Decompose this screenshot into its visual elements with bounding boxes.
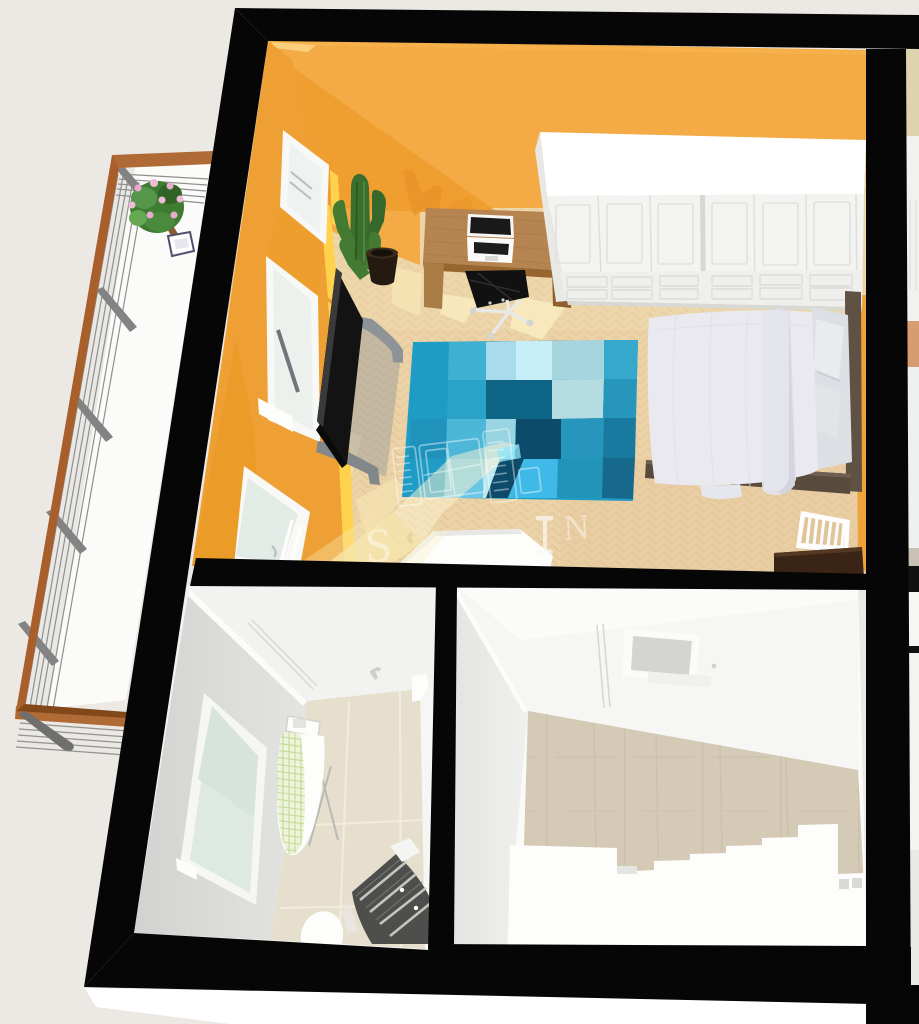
svg-text:N: N [562, 507, 590, 548]
